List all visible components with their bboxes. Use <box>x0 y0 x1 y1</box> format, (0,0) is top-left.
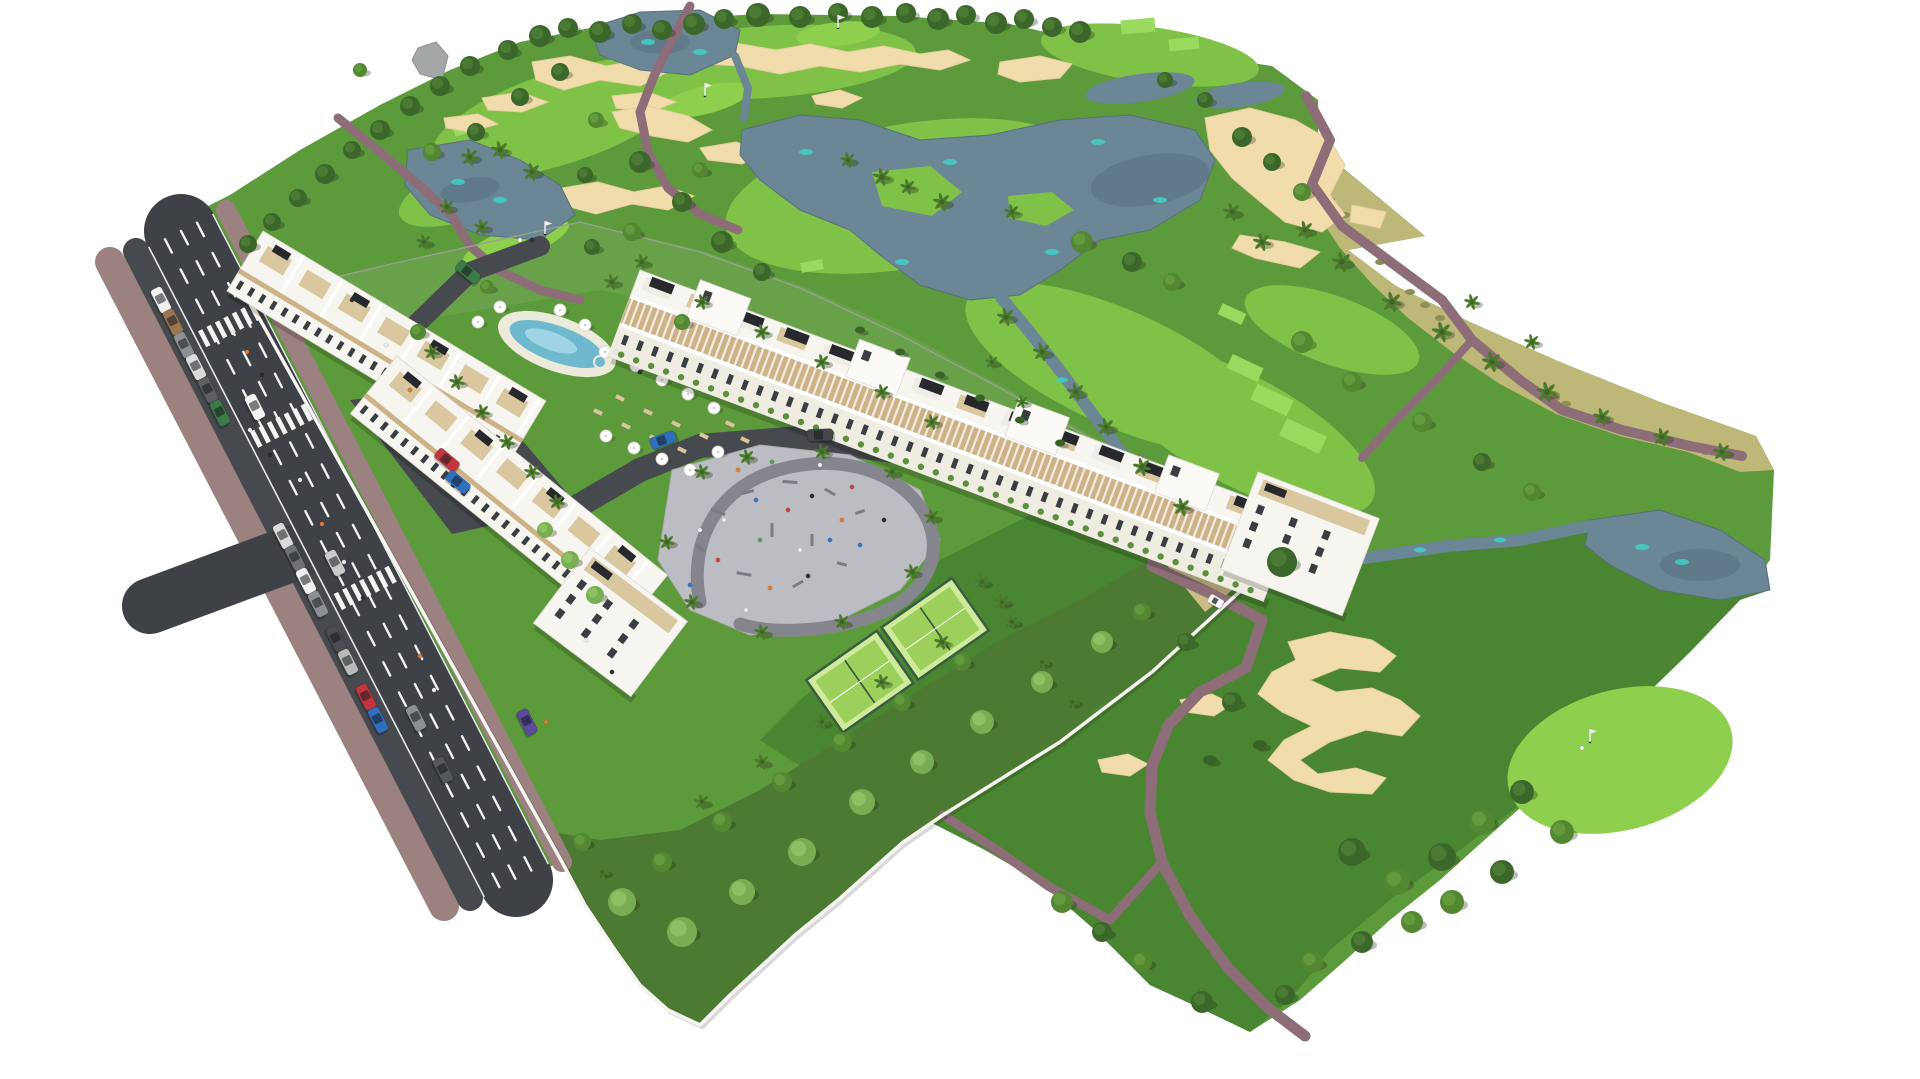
playground-equipment <box>771 523 774 537</box>
tree-canopy-highlight <box>539 524 548 533</box>
stream-teal-patch <box>1056 378 1068 383</box>
palm-crown <box>1544 389 1549 394</box>
tree <box>1014 9 1038 29</box>
tree-canopy-highlight <box>791 841 806 856</box>
palm-tree <box>1464 294 1483 311</box>
palm-crown <box>1230 210 1235 215</box>
shrub-body <box>855 327 865 334</box>
lake-shade <box>1660 549 1740 581</box>
palm-crown <box>820 450 824 454</box>
parasol-pole <box>633 447 635 449</box>
tree-canopy-highlight <box>1353 933 1365 945</box>
tree-canopy-highlight <box>1295 185 1305 195</box>
palm-crown <box>700 300 704 304</box>
tree-canopy-highlight <box>830 5 841 16</box>
tree-canopy-highlight <box>1016 11 1027 22</box>
tree-canopy-highlight <box>1124 254 1135 265</box>
stream-teal-patch <box>1414 548 1426 553</box>
person <box>320 522 324 526</box>
shrub-body <box>1015 417 1025 424</box>
tree <box>353 63 371 77</box>
palm-crown <box>498 148 503 153</box>
person <box>530 238 534 242</box>
tree-canopy-highlight <box>1341 841 1356 856</box>
tree-canopy-highlight <box>590 114 599 123</box>
tree-canopy-highlight <box>625 225 635 235</box>
plaza-person <box>736 468 740 472</box>
tree-canopy-highlight <box>1344 374 1355 385</box>
tree-canopy-highlight <box>1414 414 1425 425</box>
tree-canopy-highlight <box>732 882 746 896</box>
palm-crown <box>610 280 614 284</box>
tree-canopy-highlight <box>481 281 489 289</box>
palm-crown <box>1004 315 1009 320</box>
lake-teal-patch <box>1675 559 1689 565</box>
tree-canopy-highlight <box>654 22 665 33</box>
tree-canopy-highlight <box>1071 23 1083 35</box>
person <box>260 373 264 377</box>
palm-crown <box>1470 300 1474 304</box>
palm-crown <box>1000 600 1004 604</box>
lake-teal-patch <box>1635 544 1649 550</box>
person <box>1580 746 1584 750</box>
tree-canopy-highlight <box>513 90 523 100</box>
parasol-pole <box>584 324 586 326</box>
tree-canopy-highlight <box>372 122 383 133</box>
person <box>432 688 436 692</box>
tree-canopy-highlight <box>1431 846 1446 861</box>
shrub-body <box>1055 440 1065 447</box>
person <box>268 453 272 457</box>
lake-teal-patch <box>1091 139 1105 145</box>
palm-crown <box>1600 415 1605 420</box>
tree-canopy-highlight <box>654 854 665 865</box>
palm-crown <box>880 175 885 180</box>
tree-canopy-highlight <box>1193 993 1205 1005</box>
plaza-person <box>754 498 758 502</box>
parasol-pole <box>661 458 663 460</box>
person <box>231 331 235 335</box>
palm-crown <box>468 155 473 160</box>
tree-canopy-highlight <box>685 15 697 27</box>
palm-crown <box>890 470 894 474</box>
palm-crown <box>745 455 749 459</box>
tree-canopy-highlight <box>791 8 803 20</box>
lake-teal-patch <box>1153 197 1167 203</box>
plaza-person <box>818 463 822 467</box>
tree-canopy-highlight <box>579 169 588 178</box>
parasol-pole <box>559 309 561 311</box>
tree <box>1490 860 1518 884</box>
palm-crown <box>1389 299 1394 304</box>
tree-canopy-highlight <box>958 7 969 18</box>
lake-teal-patch <box>493 197 507 203</box>
plaza-person <box>698 528 702 532</box>
palm-crown <box>1530 340 1534 344</box>
tree-canopy-highlight <box>1270 550 1287 567</box>
tree-canopy-highlight <box>755 265 765 275</box>
plaza-person <box>858 543 862 547</box>
person <box>361 596 365 600</box>
palm-crown <box>906 185 910 189</box>
tree-canopy-highlight <box>631 153 643 165</box>
person <box>610 670 614 674</box>
tree-canopy-highlight <box>432 78 443 89</box>
tree-canopy-highlight <box>560 20 571 31</box>
palm-crown <box>760 630 764 634</box>
palm-crown <box>880 390 884 394</box>
palm-crown <box>422 240 426 244</box>
tree-canopy-highlight <box>1442 892 1455 905</box>
palm-crown <box>1010 620 1014 624</box>
person <box>298 478 302 482</box>
tree-canopy-highlight <box>694 164 703 173</box>
person <box>408 388 412 392</box>
parasol-pole <box>687 393 689 395</box>
tree-canopy-highlight <box>1044 19 1055 30</box>
person <box>638 370 642 374</box>
palm-crown <box>480 410 484 414</box>
tree-canopy-highlight <box>1159 74 1168 83</box>
palm-crown <box>940 640 944 644</box>
palm-tree <box>1524 334 1543 351</box>
tree-canopy-highlight <box>1073 233 1085 245</box>
plaza-person <box>758 538 762 542</box>
palm-crown <box>820 360 824 364</box>
plaza-person <box>786 508 790 512</box>
plaza-person <box>798 548 802 552</box>
tree-canopy-highlight <box>748 5 761 18</box>
parasol-pole <box>499 306 501 308</box>
palm-crown <box>1070 700 1074 704</box>
person <box>518 238 522 242</box>
tree-canopy-highlight <box>1033 673 1045 685</box>
tree-canopy-highlight <box>1293 333 1305 345</box>
tree-canopy-highlight <box>716 11 727 22</box>
plaza-person <box>744 608 748 612</box>
tree-canopy-highlight <box>1053 893 1065 905</box>
tree-canopy-highlight <box>774 774 785 785</box>
car <box>807 428 835 443</box>
tree-canopy-highlight <box>912 752 925 765</box>
palm-crown <box>940 200 945 205</box>
palm-crown <box>700 470 704 474</box>
parasol-pole <box>605 435 607 437</box>
palm-crown <box>640 260 644 264</box>
tree-canopy-highlight <box>955 655 965 665</box>
scrub-speck <box>1435 315 1445 321</box>
palm-crown <box>530 470 534 474</box>
person <box>248 428 252 432</box>
tree-canopy-highlight <box>1387 872 1401 886</box>
rendering-canvas <box>0 0 1920 1079</box>
palm-crown <box>505 440 509 444</box>
tree-canopy-highlight <box>317 166 328 177</box>
person <box>342 560 346 564</box>
tree-canopy-highlight <box>1265 155 1275 165</box>
palm-crown <box>1020 400 1024 404</box>
plaza-person <box>716 558 720 562</box>
plaza-person <box>840 518 844 522</box>
palm-crown <box>930 515 934 519</box>
palm-crown <box>930 420 934 424</box>
palm-crown <box>760 330 764 334</box>
tree-canopy-highlight <box>575 835 585 845</box>
lake-teal-patch <box>943 159 957 165</box>
lake-teal-patch <box>693 49 707 55</box>
parasol-pole <box>604 351 606 353</box>
palm-crown <box>1010 210 1014 214</box>
tree-canopy-highlight <box>591 23 603 35</box>
tree-canopy-highlight <box>354 64 362 72</box>
tree-canopy-highlight <box>531 27 543 39</box>
palm-crown <box>1660 435 1665 440</box>
palm-crown <box>700 800 704 804</box>
scrub-speck <box>1420 302 1430 308</box>
tree-canopy-highlight <box>1475 455 1485 465</box>
person <box>584 638 588 642</box>
palm-crown <box>530 170 535 175</box>
tree-canopy-highlight <box>852 792 866 806</box>
palm-crown <box>455 380 459 384</box>
plaza-person <box>806 574 810 578</box>
plaza-person <box>828 538 832 542</box>
plaza-person <box>882 518 886 522</box>
palm-crown <box>1104 425 1109 430</box>
aerial-rendering <box>0 0 1920 1079</box>
tree-canopy-highlight <box>586 241 595 250</box>
palm-crown <box>1489 359 1494 364</box>
tree-canopy-highlight <box>895 695 905 705</box>
palm-crown <box>480 225 484 229</box>
tree-canopy-highlight <box>714 814 725 825</box>
tree-canopy-highlight <box>1303 953 1315 965</box>
tree-canopy-highlight <box>563 553 573 563</box>
palm-crown <box>1140 465 1145 470</box>
palm-crown <box>430 350 434 354</box>
tree-canopy-highlight <box>345 143 355 153</box>
shrub-body <box>975 395 985 402</box>
palm-crown <box>910 570 914 574</box>
tree <box>1440 890 1468 914</box>
palm-crown <box>1180 505 1185 510</box>
tree-canopy-highlight <box>1512 782 1525 795</box>
tree-canopy-highlight <box>1094 924 1105 935</box>
tree-canopy-highlight <box>898 5 909 16</box>
tree-canopy-highlight <box>834 734 845 745</box>
tree-canopy-highlight <box>1134 954 1145 965</box>
car-windshield <box>814 430 823 439</box>
shrub-body <box>1253 740 1267 750</box>
shrub-body <box>895 349 905 356</box>
parasol-pole <box>717 451 719 453</box>
palm-crown <box>990 360 994 364</box>
tree-canopy-highlight <box>670 920 687 937</box>
parasol-pole <box>689 469 691 471</box>
tree-canopy-highlight <box>972 712 985 725</box>
tree-canopy-highlight <box>1234 129 1245 140</box>
rock-outcrop <box>412 42 448 80</box>
tree-canopy-highlight <box>1224 694 1235 705</box>
tree-canopy-highlight <box>676 316 685 325</box>
palm-crown <box>760 760 764 764</box>
palm-crown <box>600 870 604 874</box>
person <box>350 298 354 302</box>
tee-box <box>1120 18 1155 35</box>
tree <box>1401 911 1427 933</box>
tree-canopy-highlight <box>987 14 999 26</box>
palm-crown <box>665 540 669 544</box>
lake-teal-patch <box>895 259 909 265</box>
tree-canopy-highlight <box>1552 822 1565 835</box>
palm-crown <box>555 500 559 504</box>
palm-crown <box>1439 329 1444 334</box>
tree-canopy-highlight <box>402 98 413 109</box>
palm-crown <box>820 720 824 724</box>
tree-canopy-highlight <box>1199 94 1208 103</box>
palm-crown <box>1040 660 1044 664</box>
tree-canopy-highlight <box>1277 987 1288 998</box>
plaza-person <box>770 460 774 464</box>
palm-crown <box>1260 240 1265 245</box>
tree-canopy-highlight <box>265 215 275 225</box>
palm-crown <box>445 205 449 209</box>
tree-canopy-highlight <box>1492 862 1505 875</box>
playground-equipment <box>811 534 814 546</box>
palm-crown <box>980 580 984 584</box>
palm-crown <box>1040 350 1045 355</box>
tree-canopy-highlight <box>588 588 598 598</box>
tree-canopy-highlight <box>241 237 251 247</box>
palm-crown <box>846 158 850 162</box>
tree-canopy-highlight <box>462 58 473 69</box>
palm-crown <box>690 600 694 604</box>
parasol-pole <box>713 407 715 409</box>
tree-canopy-highlight <box>553 65 563 75</box>
shrub-body <box>1203 755 1217 765</box>
palm-crown <box>880 680 884 684</box>
person <box>418 654 422 658</box>
palm-crown <box>1339 259 1344 264</box>
tree-canopy-highlight <box>469 125 479 135</box>
palm-crown <box>1720 450 1725 455</box>
tree-canopy-highlight <box>1525 485 1535 495</box>
lake-teal-patch <box>641 39 655 45</box>
stream-teal-patch <box>1494 538 1506 543</box>
tree-canopy-highlight <box>1165 275 1175 285</box>
palm-crown <box>1074 390 1079 395</box>
lake-teal-patch <box>799 149 813 155</box>
palm-crown <box>1303 228 1308 233</box>
tree-canopy-highlight <box>412 326 421 335</box>
tree-canopy-highlight <box>1179 635 1189 645</box>
person <box>245 350 249 354</box>
scrub-speck <box>1405 289 1415 295</box>
plaza-person <box>810 494 814 498</box>
lake-teal-patch <box>451 179 465 185</box>
person <box>384 343 388 347</box>
tree-canopy-highlight <box>863 8 875 20</box>
tree-canopy-highlight <box>425 145 435 155</box>
tree-canopy-highlight <box>500 42 511 53</box>
tree-canopy-highlight <box>624 16 635 27</box>
person <box>544 720 548 724</box>
tree-canopy-highlight <box>611 891 626 906</box>
tree-canopy-highlight <box>291 191 301 201</box>
tree-canopy-highlight <box>1403 913 1415 925</box>
plaza-person <box>722 518 726 522</box>
tree-canopy-highlight <box>929 10 941 22</box>
plaza-person <box>688 583 692 587</box>
tree-canopy-highlight <box>674 194 685 205</box>
tree-canopy-highlight <box>1472 812 1486 826</box>
person <box>614 350 618 354</box>
tree-canopy-highlight <box>1135 605 1145 615</box>
plaza-person <box>850 485 854 489</box>
shrub-body <box>935 372 945 379</box>
tree-canopy-highlight <box>713 233 725 245</box>
palm-crown <box>840 620 844 624</box>
tree-canopy-highlight <box>1093 633 1105 645</box>
plaza-person <box>768 586 772 590</box>
parasol-pole <box>477 321 479 323</box>
lake-teal-patch <box>1045 249 1059 255</box>
